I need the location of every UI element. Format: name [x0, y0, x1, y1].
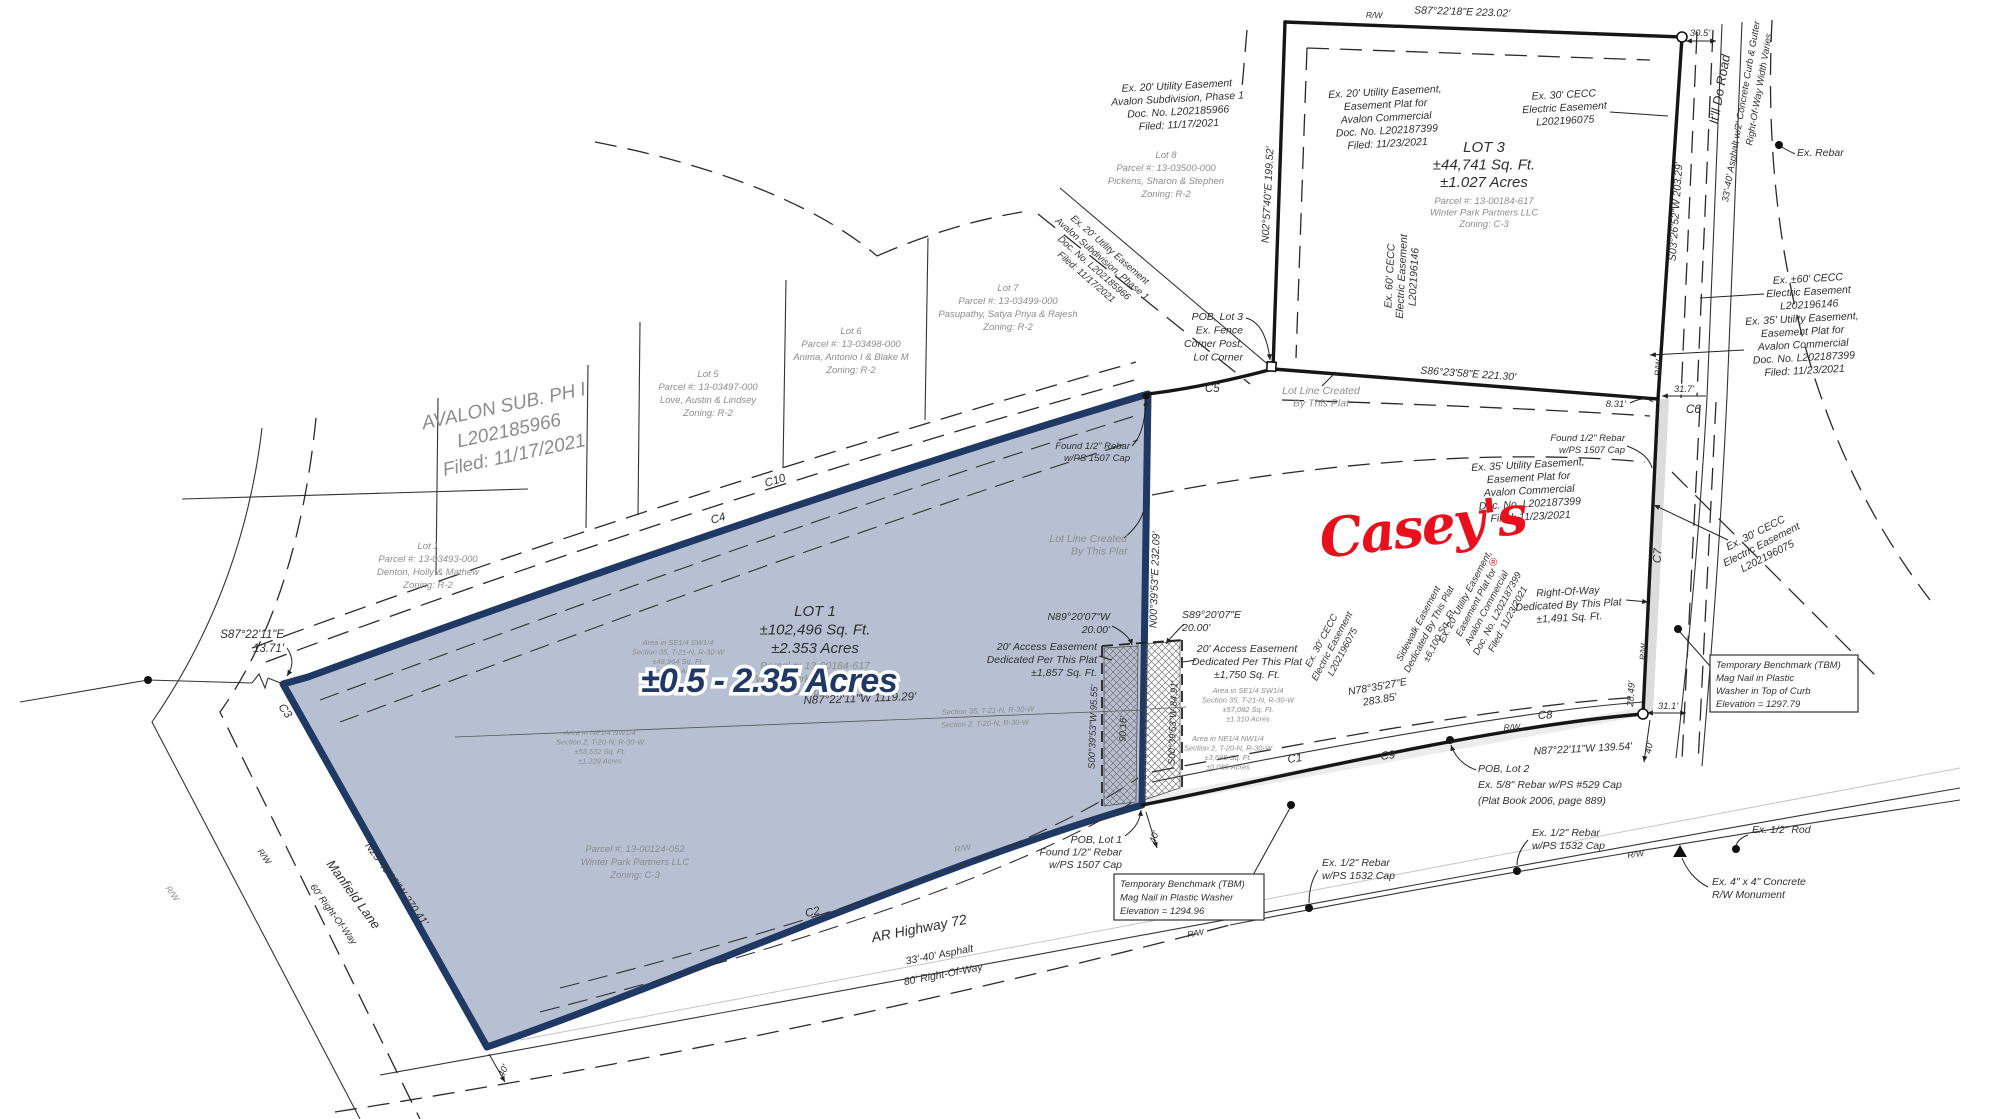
dim-305: 30.5' — [1690, 28, 1711, 39]
acreage-banner: ±0.5 - 2.35 Acres — [641, 662, 898, 700]
rw-label-top: R/W — [1366, 10, 1384, 21]
ex-rebar-label: Ex. Rebar — [1797, 147, 1844, 159]
found-ne-label: Found 1/2" Rebarw/PS 1507 Cap — [1055, 441, 1131, 464]
curve-c8: C8 — [1538, 709, 1554, 722]
pob3-label: POB, Lot 3Ex. FenceCorner Post,Lot Corne… — [1184, 311, 1243, 364]
dim-2849: 28.49' — [1625, 679, 1638, 707]
rw-c8: R/W — [1503, 722, 1521, 733]
c8-corner-circle — [1638, 709, 1648, 719]
ne-corner-circle — [1677, 32, 1687, 42]
lot1-ne-corner-dot — [1143, 393, 1150, 400]
rw-c7-a: R/W — [1637, 642, 1648, 660]
rod-label: Ex. 1/2" Rod — [1752, 824, 1812, 836]
dim-311: 31.1' — [1658, 701, 1679, 712]
plat-page: AVALON SUB. PH IL202185966Filed: 11/17/2… — [0, 0, 2000, 1119]
west-monument-dot — [144, 676, 152, 684]
dim-317: 31.7' — [1674, 384, 1695, 395]
curve-c6: C6 — [1686, 404, 1701, 416]
found-right-label: Found 1/2" Rebarw/PS 1507 Cap — [1550, 433, 1626, 456]
reb1532b-label: Ex. 1/2" Rebarw/PS 1532 Cap — [1532, 827, 1605, 852]
dim-831: 8.31' — [1606, 399, 1627, 410]
curve-c5: C5 — [1205, 383, 1220, 395]
pob3-square — [1267, 362, 1277, 372]
curve-c7: C7 — [1652, 547, 1665, 563]
caseys-registered-mark: ® — [1489, 557, 1498, 569]
tbm-top-dot — [1674, 625, 1682, 633]
dim-9016: 90.16' — [1118, 715, 1130, 742]
rebar-dot-2 — [1513, 867, 1521, 875]
curve-c9: C9 — [1380, 749, 1397, 763]
ex-rebar-dot — [1775, 141, 1783, 149]
pob2-dot — [1446, 736, 1454, 744]
rebar-dot-1 — [1305, 904, 1313, 912]
rod-dot — [1732, 845, 1740, 853]
tbm-bottom-dot — [1287, 801, 1295, 809]
plat-drawing: AVALON SUB. PH IL202185966Filed: 11/17/2… — [0, 0, 2000, 1119]
reb1532a-label: Ex. 1/2" Rebarw/PS 1532 Cap — [1322, 857, 1395, 882]
curve-c1: C1 — [1287, 752, 1303, 766]
rw-c7-b: R/W — [1652, 358, 1663, 376]
